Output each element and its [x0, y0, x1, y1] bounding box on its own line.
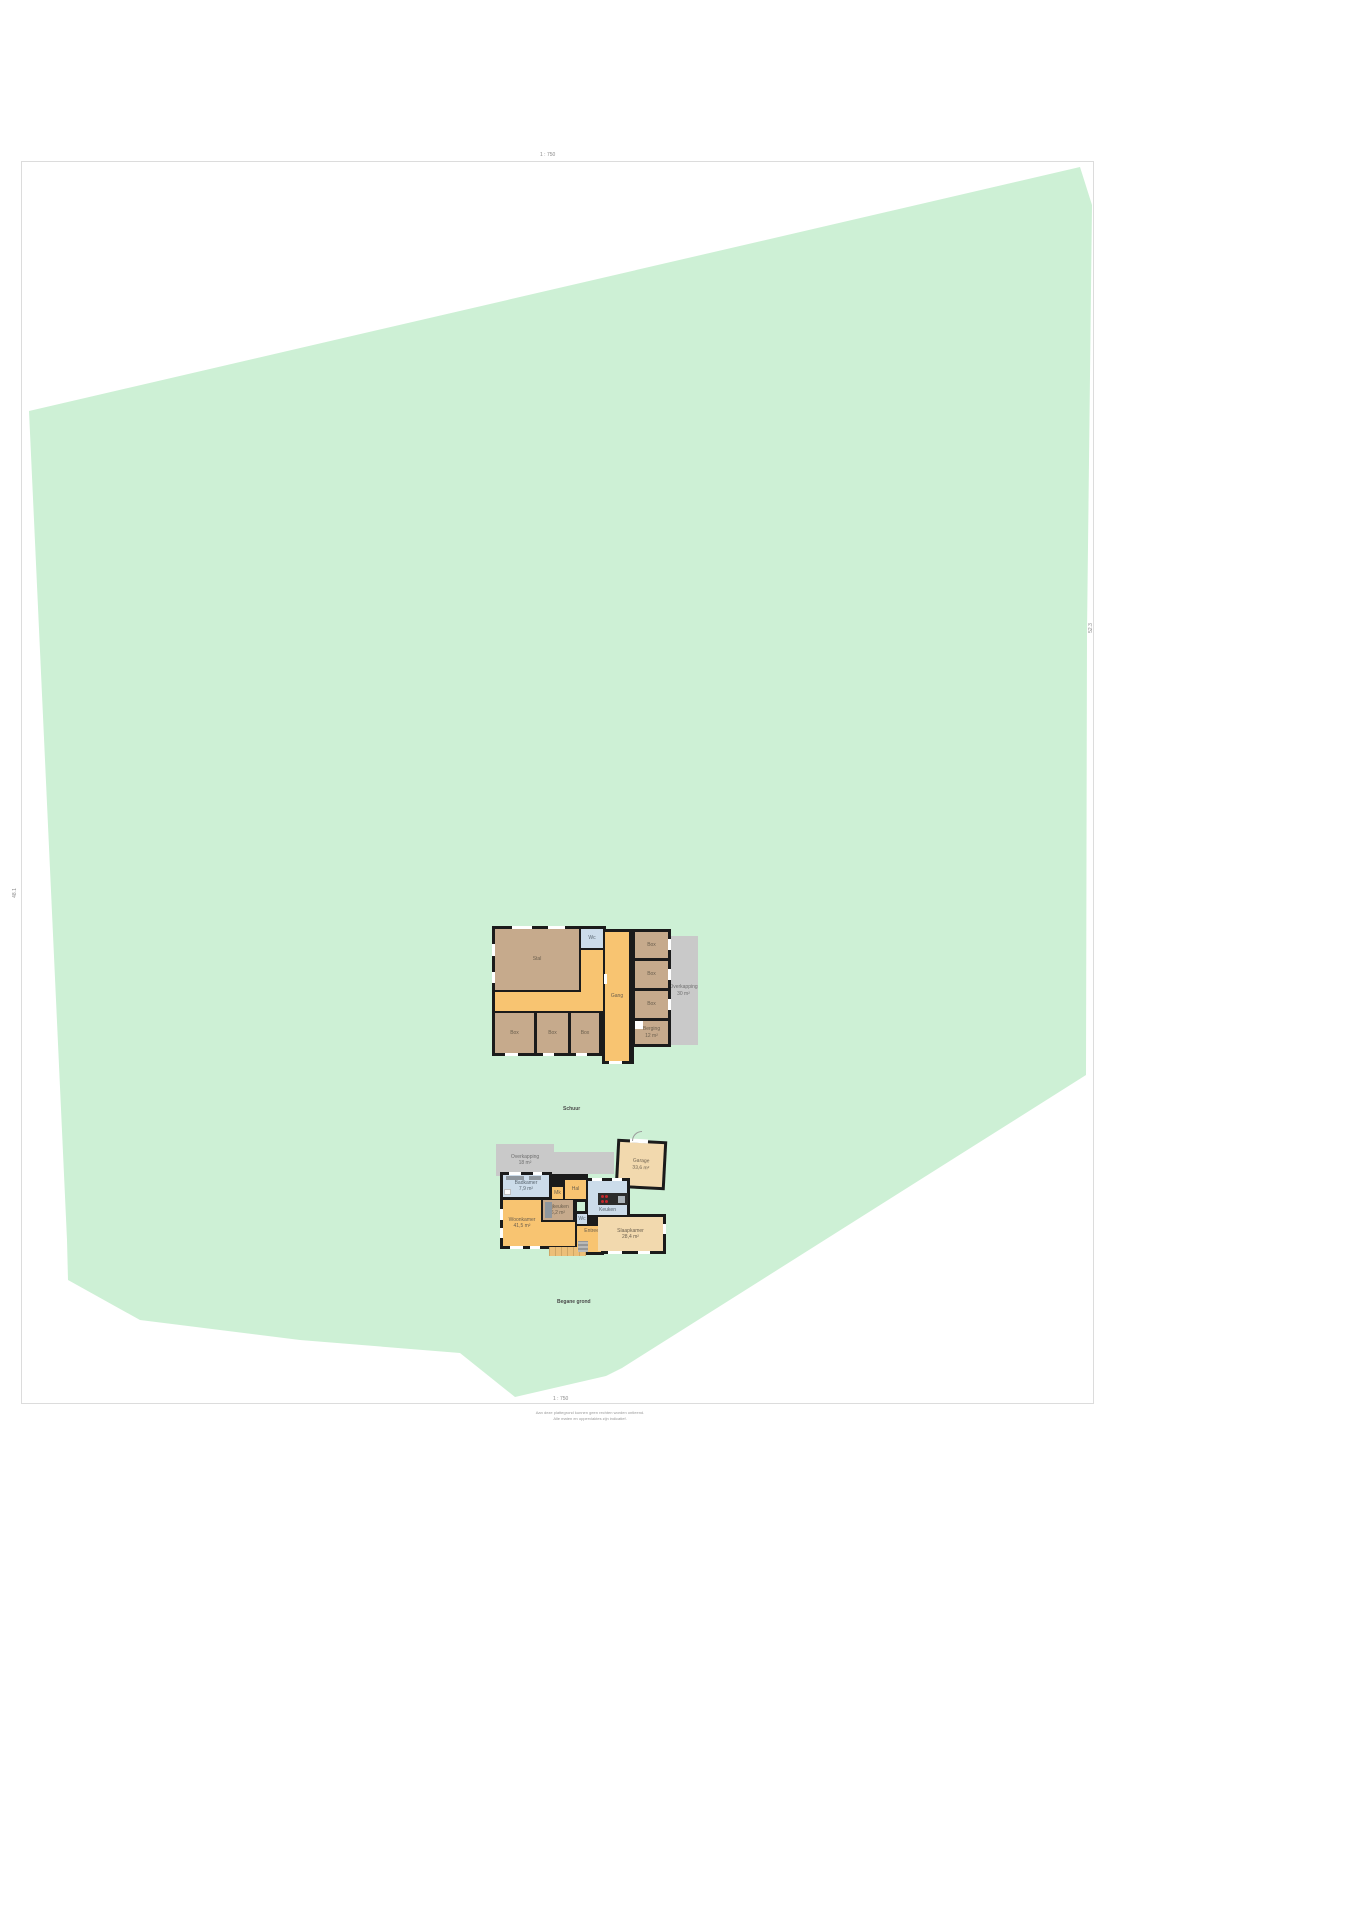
- berging-door-niche: [635, 1021, 643, 1029]
- room-box2-label: Box: [548, 1030, 557, 1036]
- window-gap: [505, 1053, 518, 1056]
- lower-plan-caption: Begane grond: [557, 1299, 591, 1305]
- room-box5: Box: [635, 961, 668, 988]
- window-gap: [509, 1172, 521, 1175]
- window-gap: [548, 926, 565, 929]
- window-gap: [512, 926, 532, 929]
- window-gap: [510, 1246, 523, 1249]
- room-box2: Box: [537, 1013, 568, 1053]
- stove-burner: [601, 1195, 604, 1198]
- window-gap: [663, 1224, 666, 1234]
- window-gap: [492, 944, 495, 956]
- stairs: [578, 1241, 588, 1252]
- room-box3-label: Box: [581, 1030, 590, 1036]
- hall-corridor-label: Gang: [611, 993, 623, 999]
- window-gap: [668, 939, 671, 950]
- window-gap: [530, 1246, 540, 1249]
- window-gap: [500, 1209, 503, 1220]
- room-box6: Box: [635, 991, 668, 1018]
- barn-canopy-area: Overkapping 30 m²: [669, 936, 698, 1045]
- scale-marker-top: 1 : 750: [540, 152, 555, 158]
- room-entree-label: Entree: [584, 1228, 599, 1234]
- boundary-marker-left: 48.1: [12, 888, 18, 898]
- window-gap: [638, 1251, 650, 1254]
- room-keuken-label: Keuken: [599, 1207, 616, 1213]
- window-gap: [500, 1228, 503, 1238]
- toilet-fixture: [504, 1189, 511, 1195]
- stove-burner: [605, 1200, 608, 1203]
- room-box4: Box: [635, 932, 668, 958]
- room-woonkamer-ext: [541, 1222, 575, 1246]
- room-woonkamer: Woonkamer 41,5 m²: [503, 1200, 541, 1246]
- hall-arm: [495, 992, 603, 1011]
- window-gap: [533, 1172, 542, 1175]
- room-box6-label: Box: [647, 1001, 656, 1007]
- bath-counter: [529, 1176, 541, 1180]
- door-gap: [609, 1061, 622, 1064]
- window-gap: [592, 1178, 602, 1181]
- stove-burner: [605, 1195, 608, 1198]
- room-box5-label: Box: [647, 971, 656, 977]
- appliance: [545, 1202, 552, 1218]
- window-gap: [608, 1251, 622, 1254]
- stove-burner: [601, 1200, 604, 1203]
- door-gap: [604, 974, 607, 984]
- house-carport-strip: [554, 1152, 614, 1174]
- room-stal-label: Stal: [533, 956, 542, 962]
- window-gap: [668, 969, 671, 980]
- bath-counter: [506, 1176, 524, 1180]
- disclaimer-line-2: Alle maten en oppervlaktes zijn indicati…: [470, 1416, 710, 1421]
- room-wc-barn: Wc: [581, 929, 603, 948]
- room-slaapkamer: Slaapkamer 28,4 m²: [598, 1217, 663, 1251]
- disclaimer-line-1: Aan deze plattegrond kunnen geen rechten…: [470, 1410, 710, 1415]
- room-box3: Box: [571, 1013, 599, 1053]
- room-stal: Stal: [495, 929, 579, 990]
- upper-plan-caption: Schuur: [563, 1106, 580, 1112]
- hall-notch: [581, 950, 603, 992]
- room-meterkast: Mk: [552, 1187, 563, 1199]
- kitchen-sink: [618, 1196, 625, 1203]
- floorplan-page: 1 : 750 48.1 52.3 1 : 750 Schuur Begane …: [0, 0, 1358, 1920]
- room-hal: Hal: [565, 1180, 586, 1199]
- room-hal-label: Hal: [572, 1186, 580, 1192]
- window-gap: [492, 972, 495, 983]
- window-gap: [612, 1178, 622, 1181]
- carport-size-label: 18 m²: [519, 1160, 532, 1166]
- room-bijkeuken-size: 6,2 m²: [551, 1210, 565, 1216]
- room-slaapkamer-size: 28,4 m²: [622, 1234, 639, 1240]
- scale-marker-bottom: 1 : 750: [553, 1396, 568, 1402]
- room-garage-size: 33,6 m²: [632, 1164, 649, 1171]
- hall-corridor: Gang: [605, 932, 629, 1061]
- room-wc-house-label: Wc: [578, 1216, 585, 1222]
- room-box4-label: Box: [647, 942, 656, 948]
- room-badkamer-size: 7,9 m²: [519, 1186, 533, 1192]
- room-meterkast-label: Mk: [554, 1190, 561, 1196]
- room-berging-size: 12 m²: [645, 1033, 658, 1039]
- room-box1: Box: [495, 1013, 534, 1053]
- window-gap: [668, 999, 671, 1010]
- window-gap: [576, 1053, 587, 1056]
- room-woonkamer-size: 41,5 m²: [514, 1223, 531, 1229]
- room-box1-label: Box: [510, 1030, 519, 1036]
- window-gap: [543, 1053, 554, 1056]
- room-wc-house: Wc: [577, 1214, 587, 1224]
- canopy-size-label: 30 m²: [677, 991, 690, 997]
- boundary-marker-right: 52.3: [1088, 623, 1094, 633]
- room-wc-barn-label: Wc: [588, 935, 595, 941]
